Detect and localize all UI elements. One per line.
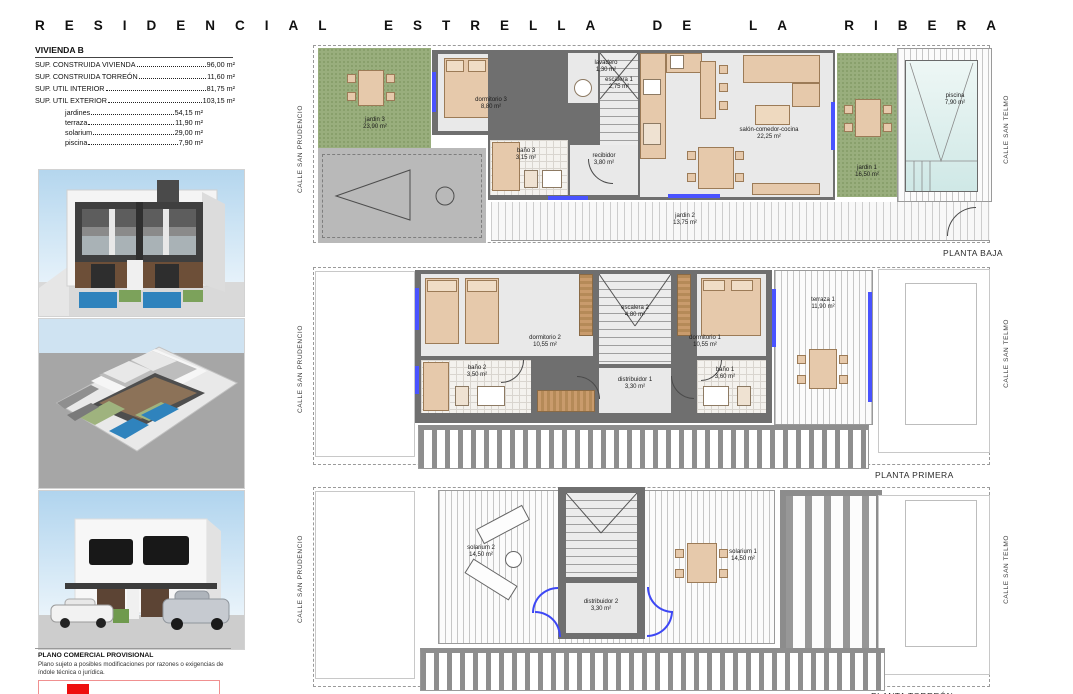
chair bbox=[675, 569, 684, 578]
floor-plan-planta-torreon: CALLE SAN PRUDENCIO CALLE SAN TELMO sola… bbox=[313, 487, 990, 694]
stool bbox=[719, 65, 728, 74]
floor-plan-planta-baja: CALLE SAN PRUDENCIO CALLE SAN TELMO jard… bbox=[313, 45, 990, 263]
chair bbox=[687, 173, 696, 182]
surface-value: 11,90 m² bbox=[175, 118, 203, 127]
kitchen-peninsula bbox=[700, 61, 716, 119]
sink-icon bbox=[542, 170, 562, 188]
room-name: baño 3 bbox=[516, 148, 536, 155]
room-dormitorio-2 bbox=[421, 274, 593, 356]
street-label-left: CALLE SAN PRUDENCIO bbox=[297, 105, 304, 193]
room-name: dormitorio 2 bbox=[529, 335, 561, 342]
room-area: 16,50 m² bbox=[855, 172, 879, 179]
chair bbox=[883, 123, 892, 132]
chair bbox=[347, 92, 356, 101]
room-label-dormitorio1: dormitorio 1 10,55 m² bbox=[689, 335, 721, 349]
front-render-illustration bbox=[39, 170, 244, 316]
torreon-walls bbox=[558, 487, 645, 639]
street-label-right: CALLE SAN TELMO bbox=[1003, 95, 1010, 164]
surface-row: SUP. CONSTRUIDA TORREÓN11,60 m² bbox=[35, 72, 235, 84]
dining-table bbox=[698, 147, 734, 189]
adjacent-pool-outline bbox=[905, 283, 977, 425]
washer-icon bbox=[574, 79, 592, 97]
window-marker bbox=[868, 292, 872, 402]
adjacent-plot bbox=[315, 271, 415, 457]
room-name: escalera 2 bbox=[621, 305, 649, 312]
room-label-escalera2: escalera 2 4,80 m² bbox=[621, 305, 649, 319]
unit-heading: VIVIENDA B bbox=[35, 45, 233, 58]
room-area: 1,30 m² bbox=[594, 67, 617, 74]
window-marker bbox=[831, 102, 835, 150]
chair bbox=[844, 105, 853, 114]
room-salon bbox=[640, 53, 833, 197]
toilet-icon bbox=[455, 386, 469, 406]
room-area: 14,50 m² bbox=[729, 556, 757, 563]
disclaimer-title: PLANO COMERCIAL PROVISIONAL bbox=[38, 652, 153, 659]
room-name: distribuidor 2 bbox=[584, 599, 618, 606]
room-label-escalera1: escalera 1 2,75 m² bbox=[605, 77, 633, 91]
room-area: 22,25 m² bbox=[739, 134, 798, 141]
chair bbox=[735, 151, 744, 160]
room-label-terraza1: terraza 1 11,90 m² bbox=[811, 297, 835, 311]
room-label-solarium1: solarium 1 14,50 m² bbox=[729, 549, 757, 563]
room-area: 3,60 m² bbox=[715, 374, 735, 381]
solarium-table bbox=[687, 543, 717, 583]
surface-label: jardines bbox=[65, 108, 90, 117]
surface-label: SUP. UTIL INTERIOR bbox=[35, 84, 105, 93]
door-arc bbox=[577, 376, 600, 399]
wardrobe bbox=[579, 274, 593, 336]
chair bbox=[839, 375, 848, 384]
room-name: jardin 2 bbox=[673, 213, 697, 220]
pool-depth-lines bbox=[906, 61, 977, 191]
room-name: jardin 3 bbox=[363, 117, 387, 124]
surface-value: 81,75 m² bbox=[207, 84, 235, 93]
sofa bbox=[743, 55, 820, 83]
chair bbox=[675, 549, 684, 558]
street-label-left: CALLE SAN PRUDENCIO bbox=[297, 325, 304, 413]
stool bbox=[719, 101, 728, 110]
room-area: 4,80 m² bbox=[621, 312, 649, 319]
surface-row: SUP. UTIL EXTERIOR103,15 m² bbox=[35, 96, 235, 108]
window-marker bbox=[432, 72, 436, 112]
plan-title-primera: PLANTA PRIMERA bbox=[875, 470, 954, 480]
render-aerial-view bbox=[38, 318, 245, 489]
surface-row: terraza11,90 m² bbox=[65, 118, 203, 128]
rear-render-illustration bbox=[39, 491, 244, 649]
room-name: solarium 1 bbox=[729, 549, 757, 556]
divider-line bbox=[35, 648, 231, 649]
room-label-jardin1: jardin 1 16,50 m² bbox=[855, 165, 879, 179]
pool-deck bbox=[897, 48, 992, 202]
room-jardin-2 bbox=[491, 202, 990, 241]
room-name: solarium 2 bbox=[467, 545, 495, 552]
dot-leader bbox=[88, 124, 174, 125]
door-arc bbox=[501, 360, 524, 383]
fridge-icon bbox=[643, 123, 661, 145]
room-area: 3,50 m² bbox=[467, 372, 487, 379]
balcony-railing bbox=[418, 425, 869, 469]
room-area: 10,55 m² bbox=[529, 342, 561, 349]
room-name: baño 2 bbox=[467, 365, 487, 372]
chair bbox=[797, 375, 806, 384]
red-highlight-swatch bbox=[67, 684, 89, 694]
room-area: 8,80 m² bbox=[475, 104, 507, 111]
room-name: piscina bbox=[945, 93, 965, 100]
room-name: distribuidor 1 bbox=[618, 377, 652, 384]
toilet-icon bbox=[737, 386, 751, 406]
room-label-lavadero: lavadero 1,30 m² bbox=[594, 60, 617, 74]
window-marker bbox=[668, 194, 720, 198]
wardrobe bbox=[677, 274, 691, 336]
room-name: dormitorio 3 bbox=[475, 97, 507, 104]
pillow bbox=[731, 280, 753, 291]
turning-area-marking bbox=[318, 148, 486, 243]
room-name: salón-comedor-cocina bbox=[739, 127, 798, 134]
room-label-recibidor: recibidor 3,80 m² bbox=[592, 153, 615, 167]
surface-label: SUP. CONSTRUIDA VIVIENDA bbox=[35, 60, 136, 69]
room-name: jardin 1 bbox=[855, 165, 879, 172]
room-label-distribuidor2: distribuidor 2 3,30 m² bbox=[584, 599, 618, 613]
room-label-dormitorio3: dormitorio 3 8,80 m² bbox=[475, 97, 507, 111]
room-label-distribuidor1: distribuidor 1 3,30 m² bbox=[618, 377, 652, 391]
plan-sheet: RESIDENCIAL ESTRELLA DE LA RIBERA VIVIEN… bbox=[0, 0, 1073, 694]
room-label-bano2: baño 2 3,50 m² bbox=[467, 365, 487, 379]
room-name: escalera 1 bbox=[605, 77, 633, 84]
pillow bbox=[427, 280, 457, 292]
pillow bbox=[468, 60, 486, 72]
room-label-jardin3: jardin 3 23,90 m² bbox=[363, 117, 387, 131]
surface-value: 54,15 m² bbox=[175, 108, 203, 117]
room-area: 3,30 m² bbox=[618, 384, 652, 391]
chair bbox=[844, 123, 853, 132]
street-label-left: CALLE SAN PRUDENCIO bbox=[297, 535, 304, 623]
chair bbox=[386, 92, 395, 101]
page-title: RESIDENCIAL ESTRELLA DE LA RIBERA bbox=[35, 18, 1016, 33]
stool bbox=[719, 83, 728, 92]
room-label-bano3: baño 3 3,15 m² bbox=[516, 148, 536, 162]
room-name: terraza 1 bbox=[811, 297, 835, 304]
room-area: 3,30 m² bbox=[584, 606, 618, 613]
chair bbox=[687, 151, 696, 160]
terrace-table bbox=[809, 349, 837, 389]
sun-lounger bbox=[476, 505, 530, 544]
surface-table: SUP. CONSTRUIDA VIVIENDA96,00 m² SUP. CO… bbox=[35, 60, 235, 148]
room-label-dormitorio2: dormitorio 2 10,55 m² bbox=[529, 335, 561, 349]
surface-value: 103,15 m² bbox=[203, 96, 235, 105]
room-label-piscina: piscina 7,90 m² bbox=[945, 93, 965, 107]
room-jardin-3 bbox=[318, 48, 431, 148]
pillow bbox=[446, 60, 464, 72]
surface-label: piscina bbox=[65, 138, 87, 147]
surface-row: SUP. UTIL INTERIOR81,75 m² bbox=[35, 84, 235, 96]
room-area: 14,50 m² bbox=[467, 552, 495, 559]
bath-closet bbox=[423, 362, 449, 411]
room-name: recibidor bbox=[592, 153, 615, 160]
adjacent-plot bbox=[315, 491, 415, 679]
door-arc bbox=[671, 376, 694, 399]
garden-table bbox=[358, 70, 384, 106]
dot-leader bbox=[137, 66, 206, 67]
dot-leader bbox=[106, 90, 206, 91]
surface-row: SUP. CONSTRUIDA VIVIENDA96,00 m² bbox=[35, 60, 235, 72]
surface-row: piscina7,90 m² bbox=[65, 138, 203, 148]
chair bbox=[719, 569, 728, 578]
room-area: 13,75 m² bbox=[673, 220, 697, 227]
room-area: 3,80 m² bbox=[592, 160, 615, 167]
dot-leader bbox=[139, 78, 207, 79]
room-area: 2,75 m² bbox=[605, 84, 633, 91]
side-table bbox=[505, 551, 522, 568]
pergola-slats bbox=[780, 490, 882, 657]
window-marker bbox=[415, 288, 419, 330]
room-piscina bbox=[905, 60, 978, 192]
window-marker bbox=[772, 289, 776, 347]
street-label-right: CALLE SAN TELMO bbox=[1003, 319, 1010, 388]
room-label-solarium2: solarium 2 14,50 m² bbox=[467, 545, 495, 559]
room-name: baño 1 bbox=[715, 367, 735, 374]
driveway bbox=[318, 148, 486, 243]
surface-value: 11,60 m² bbox=[207, 72, 235, 81]
room-label-bano1: baño 1 3,60 m² bbox=[715, 367, 735, 381]
chair bbox=[735, 173, 744, 182]
room-area: 10,55 m² bbox=[689, 342, 721, 349]
stair-direction-lines bbox=[566, 493, 637, 577]
surface-value: 96,00 m² bbox=[207, 60, 235, 69]
aerial-render-illustration bbox=[39, 319, 244, 488]
room-label-jardin2: jardin 2 13,75 m² bbox=[673, 213, 697, 227]
house-main-walls bbox=[488, 50, 835, 200]
shower-icon bbox=[703, 386, 729, 406]
room-area: 23,90 m² bbox=[363, 124, 387, 131]
surface-label: SUP. CONSTRUIDA TORREÓN bbox=[35, 72, 138, 81]
room-area: 7,90 m² bbox=[945, 100, 965, 107]
adjacent-pool-outline bbox=[905, 500, 977, 647]
window-marker bbox=[548, 196, 588, 200]
sofa-chaise bbox=[792, 83, 820, 107]
room-name: lavadero bbox=[594, 60, 617, 67]
torreon-stairs bbox=[566, 493, 637, 577]
pillow bbox=[703, 280, 725, 291]
street-label-right: CALLE SAN TELMO bbox=[1003, 535, 1010, 604]
room-area: 3,15 m² bbox=[516, 155, 536, 162]
garden-table bbox=[855, 99, 881, 137]
dot-leader bbox=[108, 102, 202, 103]
render-front-view bbox=[38, 169, 245, 317]
disclaimer-body: Plano sujeto a posibles modificaciones p… bbox=[38, 661, 226, 676]
room-name: dormitorio 1 bbox=[689, 335, 721, 342]
chair bbox=[883, 105, 892, 114]
shower-icon bbox=[477, 386, 505, 406]
dot-leader bbox=[91, 114, 173, 115]
chair bbox=[839, 355, 848, 364]
surface-row: solarium29,00 m² bbox=[65, 128, 203, 138]
surface-label: solarium bbox=[65, 128, 92, 137]
surface-value: 7,90 m² bbox=[179, 138, 203, 147]
room-area: 11,90 m² bbox=[811, 304, 835, 311]
chair bbox=[347, 74, 356, 83]
room-label-salon: salón-comedor-cocina 22,25 m² bbox=[739, 127, 798, 141]
chair bbox=[719, 549, 728, 558]
balcony-railing bbox=[420, 648, 885, 691]
window-marker bbox=[415, 366, 419, 394]
render-rear-view bbox=[38, 490, 245, 650]
surface-value: 29,00 m² bbox=[175, 128, 203, 137]
dot-leader bbox=[88, 144, 177, 145]
legend-box bbox=[38, 680, 220, 694]
tv-sideboard bbox=[752, 183, 820, 195]
toilet-icon bbox=[524, 170, 538, 188]
floor-plan-planta-primera: CALLE SAN PRUDENCIO CALLE SAN TELMO bbox=[313, 267, 990, 482]
surface-row: jardines54,15 m² bbox=[65, 108, 203, 118]
chair bbox=[386, 74, 395, 83]
sink-icon bbox=[643, 79, 661, 95]
surface-label: SUP. UTIL EXTERIOR bbox=[35, 96, 107, 105]
dot-leader bbox=[93, 134, 173, 135]
stair-direction-lines bbox=[599, 274, 671, 364]
room-escalera-2 bbox=[599, 274, 671, 364]
pillow bbox=[467, 280, 497, 292]
chair bbox=[797, 355, 806, 364]
plan-title-baja: PLANTA BAJA bbox=[943, 248, 1003, 258]
coffee-table bbox=[755, 105, 790, 125]
room-terraza-1 bbox=[774, 270, 873, 425]
surface-label: terraza bbox=[65, 118, 87, 127]
hob-icon bbox=[670, 55, 684, 69]
